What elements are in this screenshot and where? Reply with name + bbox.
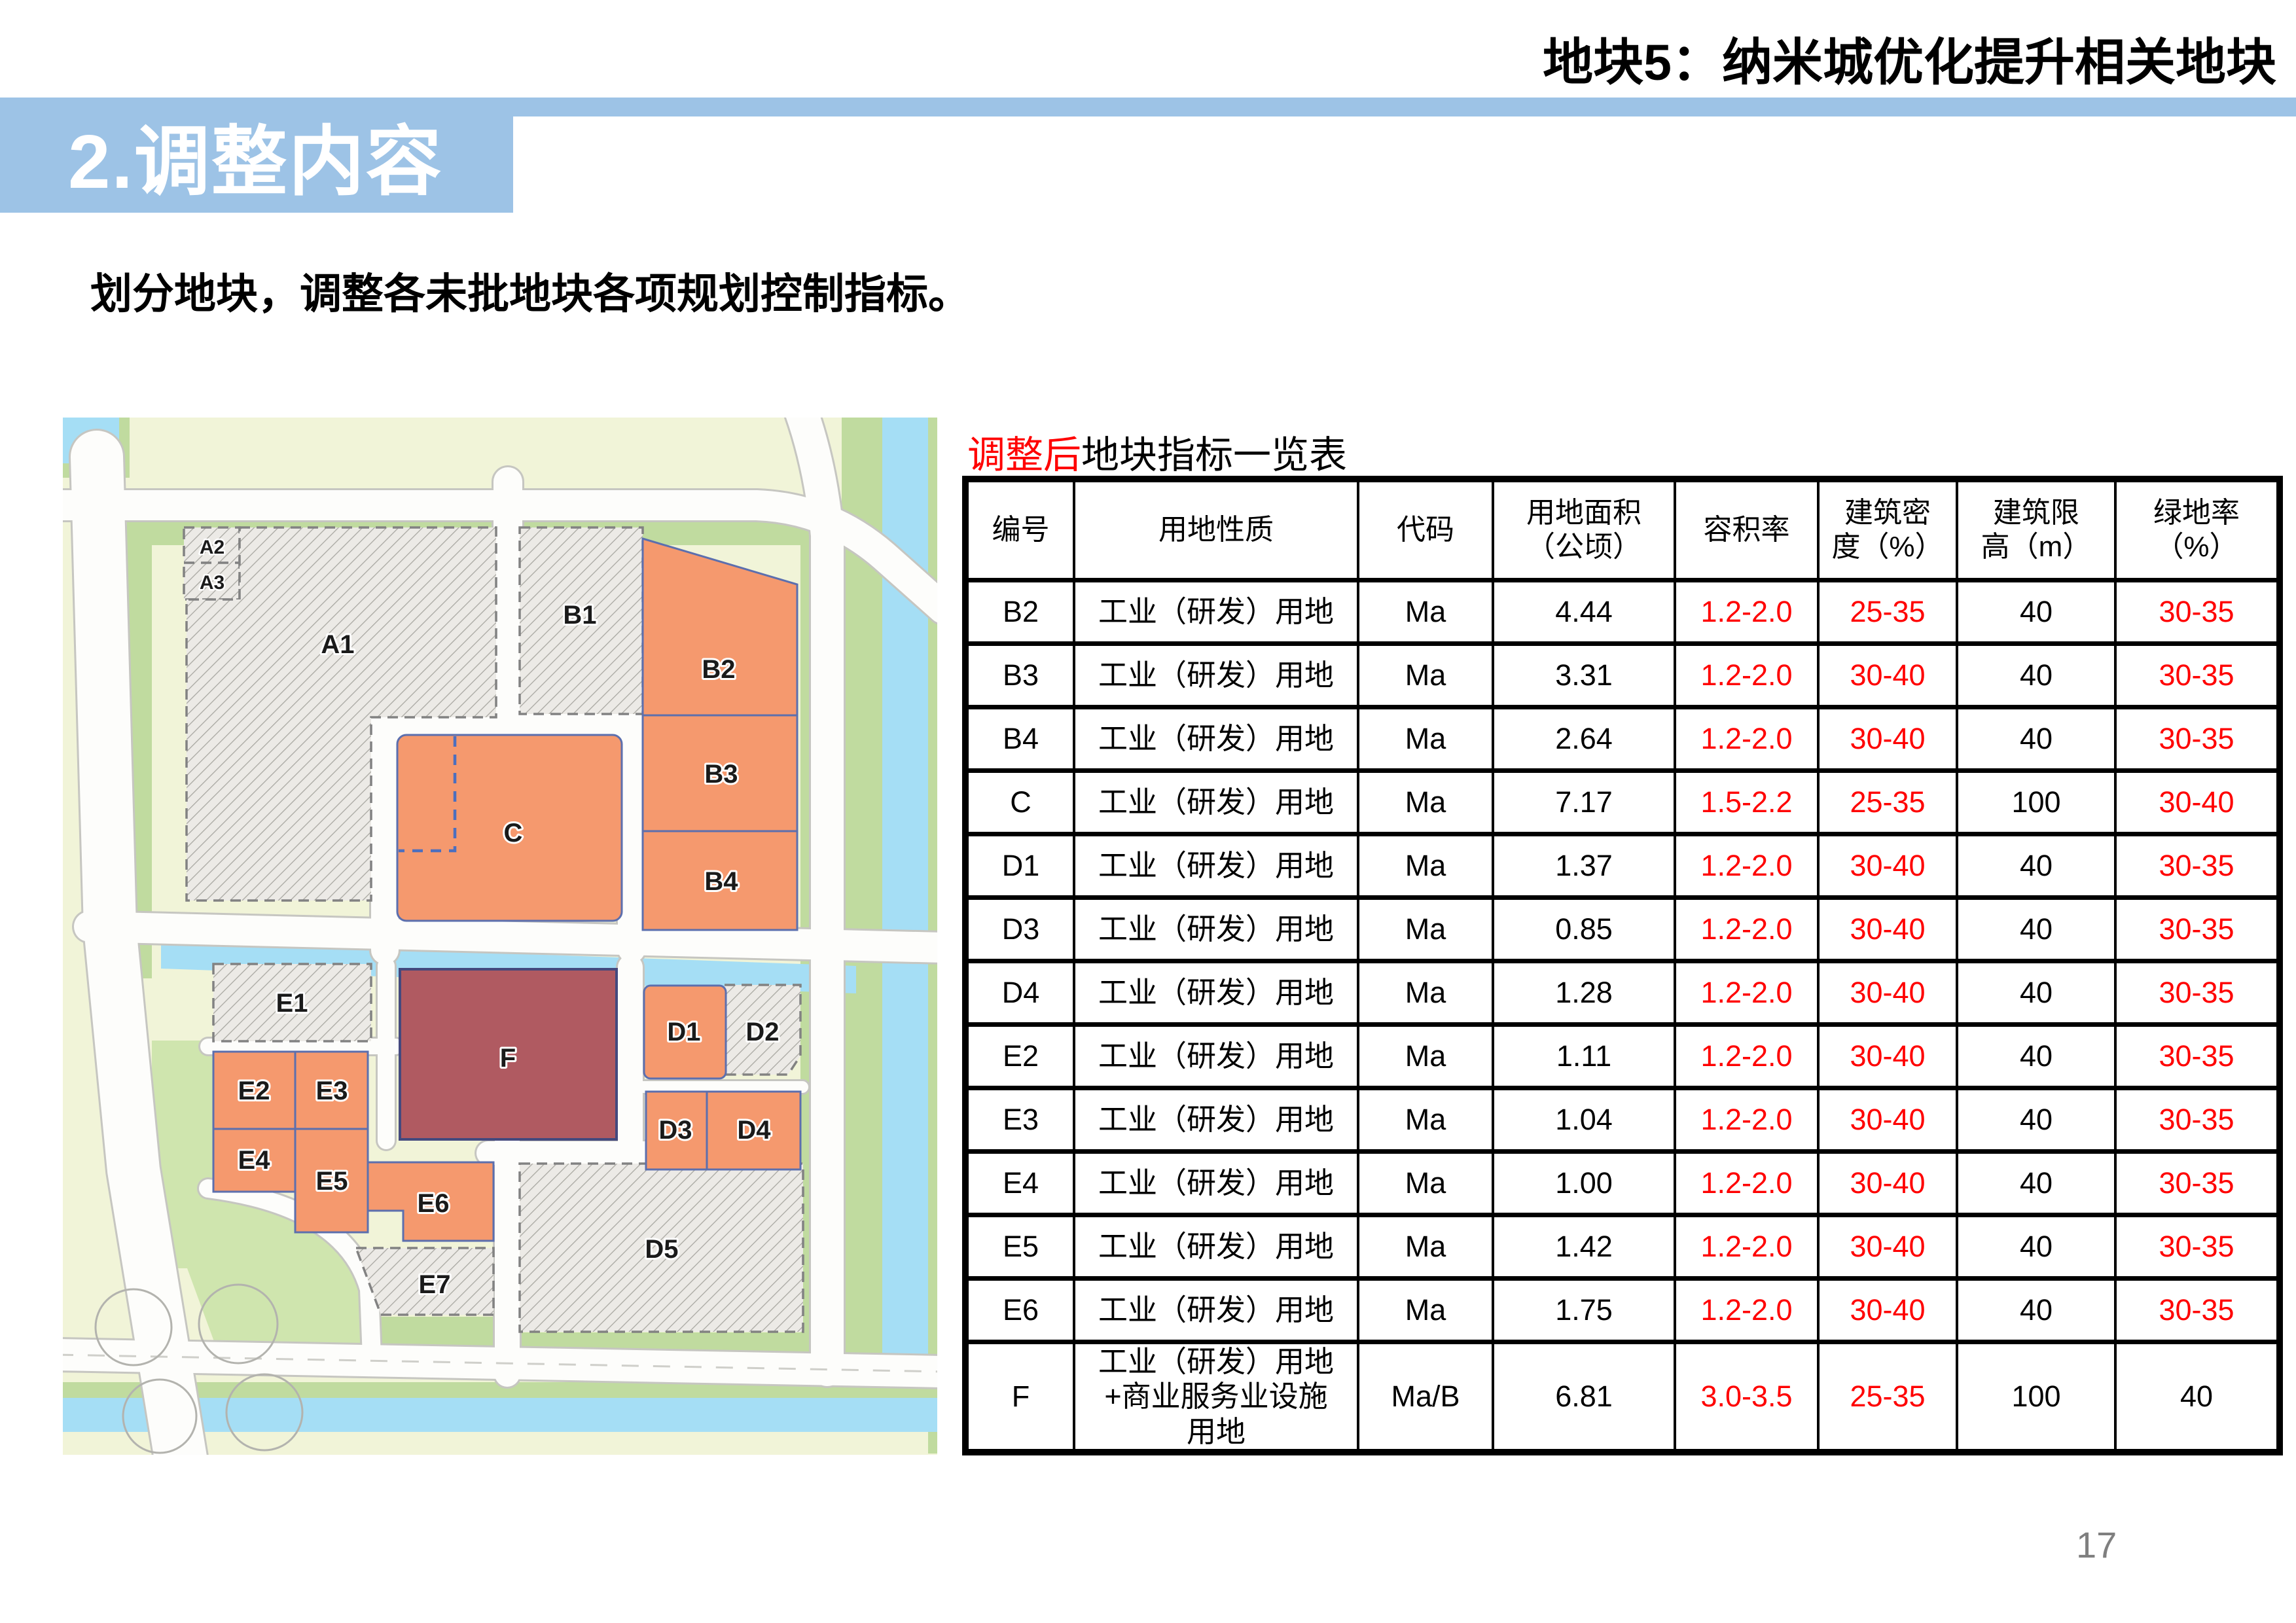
table-title: 调整后地块指标一览表 xyxy=(967,424,1347,479)
cell-green: 30-35 xyxy=(2115,961,2280,1025)
cell-height: 100 xyxy=(1957,1342,2115,1453)
map-label-b4: B4 xyxy=(704,867,738,896)
map-label-e3: E3 xyxy=(316,1077,348,1105)
cell-id: B4 xyxy=(965,707,1074,771)
cell-code: Ma xyxy=(1358,644,1493,707)
table-row: D3 工业（研发）用地 Ma 0.85 1.2-2.0 30-40 40 30-… xyxy=(965,898,2280,961)
cell-far: 1.5-2.2 xyxy=(1675,771,1818,834)
cell-area: 1.75 xyxy=(1493,1279,1675,1342)
col-header-area: 用地面积 （公顷） xyxy=(1493,479,1675,580)
cell-id: E3 xyxy=(965,1088,1074,1152)
table-row-f: F 工业（研发）用地 +商业服务业设施 用地 Ma/B 6.81 3.0-3.5… xyxy=(965,1342,2280,1453)
cell-area: 1.00 xyxy=(1493,1152,1675,1215)
map-label-e4: E4 xyxy=(238,1146,271,1175)
cell-density: 25-35 xyxy=(1818,771,1957,834)
cell-green: 30-35 xyxy=(2115,834,2280,898)
cell-use: 工业（研发）用地 xyxy=(1074,771,1358,834)
cell-area: 1.11 xyxy=(1493,1025,1675,1088)
table-header-row: 编号 用地性质 代码 用地面积 （公顷） 容积率 建筑密 度（%） 建筑限 高（… xyxy=(965,479,2280,580)
cell-height: 40 xyxy=(1957,1152,2115,1215)
cell-green: 30-35 xyxy=(2115,1215,2280,1279)
map-label-d1: D1 xyxy=(667,1018,700,1046)
cell-code: Ma xyxy=(1358,1088,1493,1152)
cell-green: 30-35 xyxy=(2115,1152,2280,1215)
cell-id: E6 xyxy=(965,1279,1074,1342)
cell-far: 1.2-2.0 xyxy=(1675,834,1818,898)
cell-code: Ma xyxy=(1358,1152,1493,1215)
cell-use: 工业（研发）用地 xyxy=(1074,707,1358,771)
cell-code: Ma xyxy=(1358,1215,1493,1279)
table-title-highlight: 调整后 xyxy=(967,434,1081,476)
cell-area: 1.28 xyxy=(1493,961,1675,1025)
cell-use: 工业（研发）用地 xyxy=(1074,644,1358,707)
cell-far: 1.2-2.0 xyxy=(1675,1215,1818,1279)
col-header-green: 绿地率 （%） xyxy=(2115,479,2280,580)
map-label-b1: B1 xyxy=(563,601,596,630)
cell-id: E4 xyxy=(965,1152,1074,1215)
cell-density: 25-35 xyxy=(1818,1342,1957,1453)
cell-height: 40 xyxy=(1957,644,2115,707)
cell-density: 30-40 xyxy=(1818,961,1957,1025)
col-header-density: 建筑密 度（%） xyxy=(1818,479,1957,580)
cell-use: 工业（研发）用地 +商业服务业设施 用地 xyxy=(1074,1342,1358,1453)
cell-density: 30-40 xyxy=(1818,1279,1957,1342)
cell-use: 工业（研发）用地 xyxy=(1074,580,1358,644)
section-banner: 2.调整内容 xyxy=(0,98,513,213)
cell-height: 40 xyxy=(1957,1279,2115,1342)
cell-height: 40 xyxy=(1957,1215,2115,1279)
cell-area: 3.31 xyxy=(1493,644,1675,707)
cell-id: E5 xyxy=(965,1215,1074,1279)
map-label-a1: A1 xyxy=(321,630,354,659)
cell-green: 30-35 xyxy=(2115,1279,2280,1342)
cell-far: 1.2-2.0 xyxy=(1675,961,1818,1025)
cell-code: Ma xyxy=(1358,834,1493,898)
cell-far: 1.2-2.0 xyxy=(1675,1025,1818,1088)
cell-code: Ma xyxy=(1358,1025,1493,1088)
col-header-id: 编号 xyxy=(965,479,1074,580)
map-label-e2: E2 xyxy=(238,1077,270,1105)
cell-far: 1.2-2.0 xyxy=(1675,644,1818,707)
cell-code: Ma xyxy=(1358,898,1493,961)
cell-green: 30-35 xyxy=(2115,1088,2280,1152)
cell-use: 工业（研发）用地 xyxy=(1074,834,1358,898)
map-label-f: F xyxy=(500,1044,516,1073)
cell-use: 工业（研发）用地 xyxy=(1074,1025,1358,1088)
cell-height: 40 xyxy=(1957,707,2115,771)
cell-use: 工业（研发）用地 xyxy=(1074,1215,1358,1279)
cell-far: 1.2-2.0 xyxy=(1675,1279,1818,1342)
cell-green: 40 xyxy=(2115,1342,2280,1453)
table-row: E6 工业（研发）用地 Ma 1.75 1.2-2.0 30-40 40 30-… xyxy=(965,1279,2280,1342)
slide: 2.调整内容 地块5：纳米城优化提升相关地块 划分地块，调整各未批地块各项规划控… xyxy=(0,0,2296,1623)
cell-density: 30-40 xyxy=(1818,1152,1957,1215)
cell-code: Ma xyxy=(1358,771,1493,834)
cell-code: Ma xyxy=(1358,707,1493,771)
cell-density: 30-40 xyxy=(1818,644,1957,707)
cell-area: 0.85 xyxy=(1493,898,1675,961)
cell-id: B2 xyxy=(965,580,1074,644)
map-label-e6: E6 xyxy=(418,1189,450,1218)
cell-green: 30-35 xyxy=(2115,1025,2280,1088)
cell-area: 2.64 xyxy=(1493,707,1675,771)
map-label-a2: A2 xyxy=(200,537,224,558)
cell-far: 1.2-2.0 xyxy=(1675,1152,1818,1215)
cell-id: E2 xyxy=(965,1025,1074,1088)
cell-height: 40 xyxy=(1957,961,2115,1025)
cell-density: 30-40 xyxy=(1818,1088,1957,1152)
map-label-e7: E7 xyxy=(419,1270,451,1299)
page-number: 17 xyxy=(2076,1524,2117,1566)
map-label-d4: D4 xyxy=(737,1116,771,1145)
cell-code: Ma xyxy=(1358,580,1493,644)
col-header-code: 代码 xyxy=(1358,479,1493,580)
land-use-map: A2 A3 A1 B1 B2 B3 B4 C E1 E2 E3 E4 E5 E6… xyxy=(63,418,937,1455)
col-header-use: 用地性质 xyxy=(1074,479,1358,580)
cell-height: 40 xyxy=(1957,580,2115,644)
cell-area: 6.81 xyxy=(1493,1342,1675,1453)
table-row: B4 工业（研发）用地 Ma 2.64 1.2-2.0 30-40 40 30-… xyxy=(965,707,2280,771)
cell-far: 1.2-2.0 xyxy=(1675,1088,1818,1152)
table-row: D1 工业（研发）用地 Ma 1.37 1.2-2.0 30-40 40 30-… xyxy=(965,834,2280,898)
map-label-c: C xyxy=(504,819,523,847)
cell-area: 1.04 xyxy=(1493,1088,1675,1152)
cell-use: 工业（研发）用地 xyxy=(1074,898,1358,961)
map-label-a3: A3 xyxy=(200,572,224,594)
subtitle: 划分地块，调整各未批地块各项规划控制指标。 xyxy=(90,260,970,321)
cell-use: 工业（研发）用地 xyxy=(1074,961,1358,1025)
cell-code: Ma xyxy=(1358,961,1493,1025)
cell-id: F xyxy=(965,1342,1074,1453)
cell-height: 40 xyxy=(1957,834,2115,898)
cell-code: Ma xyxy=(1358,1279,1493,1342)
cell-density: 30-40 xyxy=(1818,707,1957,771)
table-row: C 工业（研发）用地 Ma 7.17 1.5-2.2 25-35 100 30-… xyxy=(965,771,2280,834)
cell-green: 30-35 xyxy=(2115,580,2280,644)
cell-area: 7.17 xyxy=(1493,771,1675,834)
cell-green: 30-40 xyxy=(2115,771,2280,834)
indicators-table: 编号 用地性质 代码 用地面积 （公顷） 容积率 建筑密 度（%） 建筑限 高（… xyxy=(962,476,2283,1455)
cell-id: D1 xyxy=(965,834,1074,898)
table-row: E3 工业（研发）用地 Ma 1.04 1.2-2.0 30-40 40 30-… xyxy=(965,1088,2280,1152)
cell-green: 30-35 xyxy=(2115,644,2280,707)
cell-far: 1.2-2.0 xyxy=(1675,580,1818,644)
cell-area: 1.42 xyxy=(1493,1215,1675,1279)
cell-use: 工业（研发）用地 xyxy=(1074,1088,1358,1152)
cell-density: 25-35 xyxy=(1818,580,1957,644)
map-label-b2: B2 xyxy=(702,655,735,684)
cell-density: 30-40 xyxy=(1818,898,1957,961)
cell-use: 工业（研发）用地 xyxy=(1074,1152,1358,1215)
table-row: E2 工业（研发）用地 Ma 1.11 1.2-2.0 30-40 40 30-… xyxy=(965,1025,2280,1088)
map-label-d5: D5 xyxy=(645,1235,678,1264)
cell-id: D3 xyxy=(965,898,1074,961)
col-header-height: 建筑限 高（m） xyxy=(1957,479,2115,580)
table-row: E4 工业（研发）用地 Ma 1.00 1.2-2.0 30-40 40 30-… xyxy=(965,1152,2280,1215)
cell-density: 30-40 xyxy=(1818,1025,1957,1088)
cell-height: 40 xyxy=(1957,898,2115,961)
table-row: E5 工业（研发）用地 Ma 1.42 1.2-2.0 30-40 40 30-… xyxy=(965,1215,2280,1279)
cell-id: C xyxy=(965,771,1074,834)
cell-green: 30-35 xyxy=(2115,707,2280,771)
map-label-b3: B3 xyxy=(704,760,738,789)
table-row: B3 工业（研发）用地 Ma 3.31 1.2-2.0 30-40 40 30-… xyxy=(965,644,2280,707)
map-label-d2: D2 xyxy=(745,1018,779,1046)
table-title-rest: 地块指标一览表 xyxy=(1081,434,1347,476)
cell-density: 30-40 xyxy=(1818,1215,1957,1279)
cell-use: 工业（研发）用地 xyxy=(1074,1279,1358,1342)
cell-far: 1.2-2.0 xyxy=(1675,707,1818,771)
cell-id: B3 xyxy=(965,644,1074,707)
map-label-e5: E5 xyxy=(316,1167,348,1196)
cell-height: 100 xyxy=(1957,771,2115,834)
cell-far: 1.2-2.0 xyxy=(1675,898,1818,961)
table-row: D4 工业（研发）用地 Ma 1.28 1.2-2.0 30-40 40 30-… xyxy=(965,961,2280,1025)
cell-height: 40 xyxy=(1957,1088,2115,1152)
cell-density: 30-40 xyxy=(1818,834,1957,898)
cell-area: 1.37 xyxy=(1493,834,1675,898)
slide-title: 地块5：纳米城优化提升相关地块 xyxy=(1543,22,2276,95)
cell-id: D4 xyxy=(965,961,1074,1025)
section-title: 2.调整内容 xyxy=(68,100,443,210)
map-label-d3: D3 xyxy=(658,1116,692,1145)
cell-area: 4.44 xyxy=(1493,580,1675,644)
cell-far: 3.0-3.5 xyxy=(1675,1342,1818,1453)
cell-code: Ma/B xyxy=(1358,1342,1493,1453)
cell-green: 30-35 xyxy=(2115,898,2280,961)
cell-height: 40 xyxy=(1957,1025,2115,1088)
land-use-map-svg: A2 A3 A1 B1 B2 B3 B4 C E1 E2 E3 E4 E5 E6… xyxy=(63,418,937,1455)
table-row: B2 工业（研发）用地 Ma 4.44 1.2-2.0 25-35 40 30-… xyxy=(965,580,2280,644)
col-header-far: 容积率 xyxy=(1675,479,1818,580)
map-label-e1: E1 xyxy=(276,989,308,1018)
